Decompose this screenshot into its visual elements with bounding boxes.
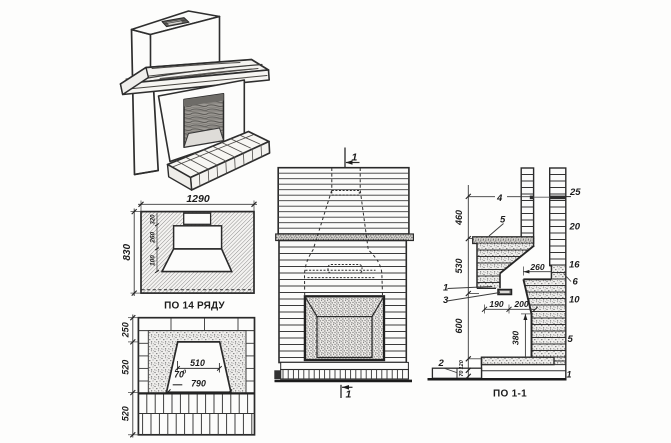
svg-text:460: 460 xyxy=(454,210,464,226)
svg-text:250: 250 xyxy=(120,322,130,338)
svg-text:1: 1 xyxy=(567,369,572,379)
svg-text:16: 16 xyxy=(569,260,580,271)
svg-text:5: 5 xyxy=(568,334,574,345)
svg-text:320: 320 xyxy=(151,214,157,225)
svg-text:100: 100 xyxy=(150,255,157,266)
svg-text:600: 600 xyxy=(454,318,464,333)
svg-text:120: 120 xyxy=(459,360,465,369)
svg-text:520: 520 xyxy=(120,360,130,375)
svg-text:260: 260 xyxy=(150,231,157,243)
svg-text:1: 1 xyxy=(443,283,448,294)
svg-text:380: 380 xyxy=(511,331,521,345)
svg-text:1290: 1290 xyxy=(186,193,210,205)
svg-text:4: 4 xyxy=(496,193,503,204)
svg-text:1: 1 xyxy=(352,152,358,164)
svg-text:70: 70 xyxy=(459,371,465,377)
svg-text:530: 530 xyxy=(454,258,464,273)
svg-text:200: 200 xyxy=(513,299,528,309)
svg-text:20: 20 xyxy=(569,222,581,233)
svg-text:ПО 14 РЯДУ: ПО 14 РЯДУ xyxy=(164,301,225,312)
svg-text:2: 2 xyxy=(438,358,445,369)
svg-text:790: 790 xyxy=(191,378,206,388)
svg-text:1: 1 xyxy=(346,389,352,401)
svg-text:260: 260 xyxy=(529,262,544,272)
svg-text:ПО 1-1: ПО 1-1 xyxy=(493,389,527,400)
svg-text:520: 520 xyxy=(120,406,130,421)
svg-text:510: 510 xyxy=(190,358,205,368)
svg-text:830: 830 xyxy=(122,244,133,261)
svg-text:6: 6 xyxy=(573,277,579,288)
svg-text:190: 190 xyxy=(489,299,503,309)
svg-text:10: 10 xyxy=(569,295,580,306)
